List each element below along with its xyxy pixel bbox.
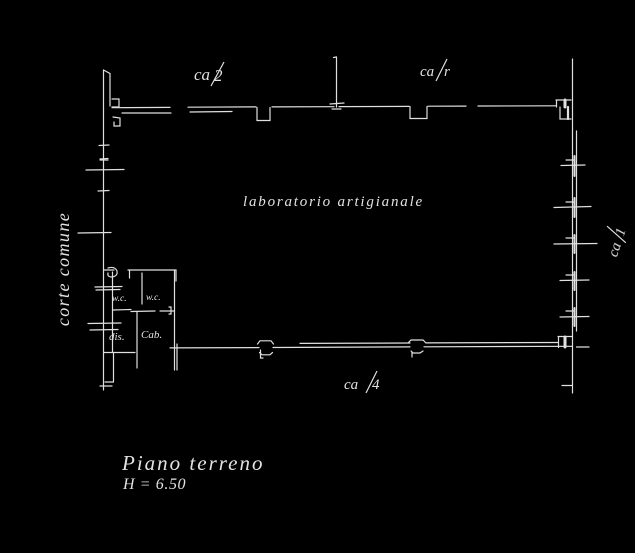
svg-text:2: 2 (214, 66, 223, 85)
svg-text:w.c.: w.c. (112, 294, 127, 304)
svg-text:ca: ca (344, 377, 358, 393)
svg-text:r: r (444, 64, 450, 80)
svg-text:4: 4 (372, 377, 380, 393)
svg-text:H = 6.50: H = 6.50 (122, 476, 186, 493)
svg-text:Piano terreno: Piano terreno (121, 451, 264, 475)
svg-text:ca: ca (194, 65, 210, 84)
svg-text:ca: ca (420, 64, 434, 80)
svg-text:dis.: dis. (109, 331, 125, 343)
svg-text:Cab.: Cab. (141, 329, 162, 341)
svg-text:w.c.: w.c. (146, 293, 161, 303)
svg-text:corte comune: corte comune (53, 212, 73, 326)
svg-text:laboratorio artigianale: laboratorio artigianale (243, 194, 424, 210)
